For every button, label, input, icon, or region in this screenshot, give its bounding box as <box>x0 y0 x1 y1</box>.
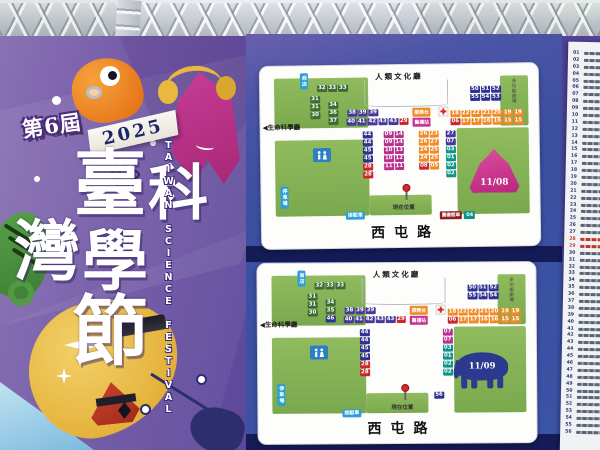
booth-29: 29 <box>399 118 409 125</box>
booth-39: 39 <box>366 307 376 314</box>
booth-group-orange-pairs: 26232627242524250805 <box>419 130 440 169</box>
booth-54: 54 <box>481 94 491 101</box>
legend-number: 36 <box>568 292 577 297</box>
booth-17: 17 <box>471 118 481 125</box>
booth-20: 20 <box>490 308 500 315</box>
booth-28: 28 <box>363 171 373 178</box>
booth-32: 32 <box>317 85 327 92</box>
booth-group-pink-pairs: 09140914101310121111 <box>384 131 405 170</box>
booth-group-purple-row-2: 404142434329 <box>344 316 406 323</box>
booth-54: 54 <box>478 292 488 299</box>
booth-45: 45 <box>360 345 370 352</box>
booth-31: 31 <box>308 302 318 309</box>
legend-number: 49 <box>566 381 575 386</box>
booth-group-col-b: 343637 <box>328 102 338 125</box>
booth-35: 35 <box>326 307 336 314</box>
legend-number: 44 <box>567 347 576 352</box>
booth-55: 55 <box>470 94 480 101</box>
booth-46: 46 <box>326 315 336 322</box>
legend-number: 13 <box>571 133 580 138</box>
booth-27: 27 <box>446 130 456 137</box>
booth-31: 31 <box>308 294 318 301</box>
booth-group-col-a: 313130 <box>308 294 318 317</box>
legend-number: 27 <box>569 230 578 235</box>
booth-07: 07 <box>446 138 456 145</box>
legend-text-cutoff <box>582 128 600 132</box>
legend-text-cutoff <box>581 203 600 207</box>
booth-19: 19 <box>500 308 510 315</box>
booth-group-navy-grid: 505152555453 <box>470 86 501 101</box>
legend-number: 54 <box>565 416 574 421</box>
legend-number: 33 <box>568 271 577 276</box>
booth-38: 38 <box>345 307 355 314</box>
title-char-jie: 節 <box>72 294 148 370</box>
atom-dot <box>34 176 40 182</box>
booth-38: 38 <box>347 110 357 117</box>
booth-group-right-col: 070703010202 <box>443 329 453 376</box>
legend-text-cutoff <box>579 300 600 304</box>
booth-group-col-a: 313130 <box>310 96 320 119</box>
booth-26: 26 <box>419 131 429 138</box>
legend-text-cutoff <box>578 355 600 359</box>
booth-07: 07 <box>443 329 453 336</box>
booth-43: 43 <box>375 316 385 323</box>
booth-16: 16 <box>482 118 492 125</box>
booth-14: 14 <box>394 139 404 146</box>
legend-number: 18 <box>571 168 580 173</box>
legend-text-cutoff <box>577 410 600 414</box>
booth-group-purple-row-1: 383939 <box>347 109 378 116</box>
booth-33: 33 <box>338 85 348 92</box>
booth-group-orange-grid: 1822222120191906171716161515 <box>450 109 523 125</box>
legend-text-cutoff <box>580 265 600 269</box>
booth-group-orange-grid: 1822222120191906171716161515 <box>448 308 521 324</box>
legend-number: 51 <box>566 395 575 400</box>
legend-text-cutoff <box>584 66 600 70</box>
legend-number: 16 <box>571 154 580 159</box>
festival-banner-photo: 第6屆 2025 臺 科 灣 學 節 TAIWAN SCIENCE FESTIV… <box>0 0 600 450</box>
booth-11: 11 <box>384 163 394 170</box>
legend-text-cutoff <box>583 93 600 97</box>
booth-33: 33 <box>336 282 346 289</box>
legend-text-cutoff <box>576 417 600 421</box>
legend-number: 50 <box>566 388 575 393</box>
booth-layer-1108: 3233333131303436373839394041424343295051… <box>260 63 541 249</box>
booth-45: 45 <box>363 155 373 162</box>
legend-number: 29 <box>569 243 578 248</box>
legend-text-cutoff <box>577 369 600 373</box>
booth-08: 08 <box>419 163 429 170</box>
legend-text-cutoff <box>579 286 600 290</box>
booth-24: 24 <box>419 147 429 154</box>
legend-number: 55 <box>565 423 574 428</box>
booth-36: 36 <box>328 110 338 117</box>
legend-text-cutoff <box>578 362 600 366</box>
legend-number: 08 <box>572 99 581 104</box>
legend-number: 14 <box>571 140 580 145</box>
title-char-tai: 臺 <box>74 148 146 220</box>
legend-number: 12 <box>571 126 580 131</box>
booth-group-purple-row-1: 383939 <box>345 307 376 314</box>
legend-number: 45 <box>567 354 576 359</box>
booth-22: 22 <box>469 308 479 315</box>
booth-31: 31 <box>310 104 320 111</box>
legend-number: 11 <box>572 119 581 124</box>
booth-24: 24 <box>419 155 429 162</box>
legend-number: 35 <box>568 285 577 290</box>
legend-number: 01 <box>573 51 582 56</box>
booth-21: 21 <box>482 110 492 117</box>
booth-51: 51 <box>481 86 491 93</box>
atom-dot <box>52 96 61 105</box>
legend-number: 28 <box>569 237 578 242</box>
booth-50: 50 <box>470 86 480 93</box>
booth-39: 39 <box>368 109 378 116</box>
booth-03: 03 <box>443 345 453 352</box>
booth-22: 22 <box>458 309 468 316</box>
legend-number: 10 <box>572 113 581 118</box>
title-char-wan: 灣 <box>14 218 80 284</box>
booth-17: 17 <box>461 118 471 125</box>
booth-group-pin-56: 56 <box>434 392 444 399</box>
booth-28: 28 <box>360 369 370 376</box>
legend-text-cutoff <box>581 183 600 187</box>
map-panel-zone: 人類文化廳 ◀生命科學廳 多功能劇場 商店 停車場 接駁車 服務台 醫護站 11… <box>246 34 562 450</box>
legend-number: 15 <box>571 147 580 152</box>
legend-number: 17 <box>571 161 580 166</box>
booth-52: 52 <box>489 284 499 291</box>
booth-54: 54 <box>489 292 499 299</box>
legend-text-cutoff <box>584 59 600 63</box>
legend-text-cutoff <box>576 431 600 435</box>
legend-number: 06 <box>572 85 581 90</box>
legend-text-cutoff <box>581 176 600 180</box>
booth-18: 18 <box>448 309 458 316</box>
booth-22: 22 <box>471 110 481 117</box>
legend-text-cutoff <box>579 307 600 311</box>
legend-text-cutoff <box>582 148 600 152</box>
legend-text-cutoff <box>578 327 600 331</box>
legend-text-cutoff <box>578 348 600 352</box>
legend-text-cutoff <box>580 238 600 242</box>
legend-text-cutoff <box>577 389 600 393</box>
booth-12: 12 <box>394 155 404 162</box>
booth-44: 44 <box>360 337 370 344</box>
legend-number: 03 <box>573 64 582 69</box>
booth-10: 10 <box>384 155 394 162</box>
legend-text-cutoff <box>576 424 600 428</box>
legend-text-cutoff <box>579 272 600 276</box>
english-subtitle-vertical: TAIWAN SCIENCE FESTIVAL <box>163 140 174 416</box>
legend-text-cutoff <box>577 396 600 400</box>
legend-text-cutoff <box>584 52 600 56</box>
booth-group-navy-grid: 505152555454 <box>468 284 499 299</box>
legend-number: 05 <box>572 78 581 83</box>
booth-layer-1109: 3233333131303435463839394041424343295051… <box>257 262 536 444</box>
legend-number: 09 <box>572 106 581 111</box>
booth-33: 33 <box>328 85 338 92</box>
booth-34: 34 <box>326 299 336 306</box>
legend-number: 53 <box>566 409 575 414</box>
molecule-dot-icon <box>196 374 207 385</box>
booth-16: 16 <box>490 316 500 323</box>
legend-text-cutoff <box>579 279 600 283</box>
booth-18: 18 <box>450 110 460 117</box>
legend-number: 02 <box>573 57 582 62</box>
booth-02: 02 <box>446 162 456 169</box>
legend-number: 22 <box>570 195 579 200</box>
booth-19: 19 <box>513 109 523 116</box>
legend-text-cutoff <box>582 162 600 166</box>
legend-text-cutoff <box>580 259 600 263</box>
booth-45: 45 <box>360 353 370 360</box>
legend-text-cutoff <box>579 314 600 318</box>
legend-text-cutoff <box>581 217 600 221</box>
legend-number: 40 <box>567 319 576 324</box>
booth-16: 16 <box>492 118 502 125</box>
booth-32: 32 <box>315 283 325 290</box>
booth-20: 20 <box>492 110 502 117</box>
legend-text-cutoff <box>582 155 600 159</box>
booth-43: 43 <box>386 316 396 323</box>
booth-28: 28 <box>363 163 373 170</box>
legend-number: 21 <box>570 188 579 193</box>
legend-text-cutoff <box>577 383 600 387</box>
booth-group-shop-row: 323333 <box>315 282 346 289</box>
legend-text-cutoff <box>583 114 600 118</box>
legend-text-cutoff <box>577 403 600 407</box>
legend-text-cutoff <box>580 231 600 235</box>
legend-number: 26 <box>569 223 578 228</box>
booth-37: 37 <box>328 118 338 125</box>
booth-21: 21 <box>479 308 489 315</box>
legend-number: 23 <box>570 202 579 207</box>
booth-39: 39 <box>355 307 365 314</box>
legend-text-cutoff <box>577 376 600 380</box>
booth-33: 33 <box>325 282 335 289</box>
booth-group-mid-col: 444445452828 <box>360 329 370 376</box>
legend-text-cutoff <box>582 169 600 173</box>
molecule-dot-icon <box>140 404 151 415</box>
booth-52: 52 <box>491 86 501 93</box>
legend-text-cutoff <box>583 79 600 83</box>
legend-text-cutoff <box>578 341 600 345</box>
booth-41: 41 <box>354 316 364 323</box>
legend-number: 52 <box>566 402 575 407</box>
legend-text-cutoff <box>581 190 600 194</box>
monster-goggle-icon <box>86 86 102 99</box>
booth-group-shop-row: 323333 <box>317 85 348 92</box>
booth-03: 03 <box>446 146 456 153</box>
booth-15: 15 <box>513 117 523 124</box>
venue-map-1109: 人類文化廳 ◀生命科學廳 多功能劇場 商店 停車場 接駁車 服務台 醫護站 <box>256 261 537 445</box>
booth-06: 06 <box>448 317 458 324</box>
booth-09: 09 <box>384 139 394 146</box>
legend-text-cutoff <box>583 107 600 111</box>
booth-05: 05 <box>430 162 440 169</box>
booth-group-col-b: 343546 <box>326 299 336 322</box>
booth-01: 01 <box>443 353 453 360</box>
booth-09: 09 <box>384 131 394 138</box>
booth-50: 50 <box>468 284 478 291</box>
booth-40: 40 <box>344 316 354 323</box>
legend-row-56: 56 <box>565 429 600 437</box>
booth-42: 42 <box>367 118 377 125</box>
legend-number: 34 <box>568 278 577 283</box>
legend-number: 24 <box>570 209 579 214</box>
monster-pupil <box>108 71 117 80</box>
legend-number: 46 <box>567 361 576 366</box>
booth-19: 19 <box>503 109 513 116</box>
legend-text-cutoff <box>581 197 600 201</box>
booth-group-right-col: 270703010202 <box>446 130 456 177</box>
legend-text-cutoff <box>580 224 600 228</box>
legend-number: 25 <box>570 216 579 221</box>
booth-42: 42 <box>365 316 375 323</box>
booth-28: 28 <box>360 361 370 368</box>
booth-30: 30 <box>310 112 320 119</box>
booth-44: 44 <box>363 131 373 138</box>
legend-text-cutoff <box>582 141 600 145</box>
booth-group-mid-col: 444445452828 <box>363 131 373 178</box>
booth-17: 17 <box>458 317 468 324</box>
booth-43: 43 <box>388 118 398 125</box>
legend-number: 32 <box>569 264 578 269</box>
booth-15: 15 <box>503 117 513 124</box>
venue-map-1108: 人類文化廳 ◀生命科學廳 多功能劇場 商店 停車場 接駁車 服務台 醫護站 11… <box>259 62 542 250</box>
booth-25: 25 <box>429 146 439 153</box>
booth-22: 22 <box>461 110 471 117</box>
legend-number: 19 <box>570 175 579 180</box>
legend-number: 30 <box>569 250 578 255</box>
booth-15: 15 <box>511 316 521 323</box>
legend-text-cutoff <box>583 86 600 90</box>
booth-16: 16 <box>479 316 489 323</box>
booth-01: 01 <box>446 154 456 161</box>
legend-number: 42 <box>567 333 576 338</box>
booth-06: 06 <box>450 118 460 125</box>
booth-29: 29 <box>396 316 406 323</box>
booth-25: 25 <box>429 154 439 161</box>
booth-02: 02 <box>443 369 453 376</box>
legend-text-cutoff <box>578 334 600 338</box>
booth-34: 34 <box>328 102 338 109</box>
booth-53: 53 <box>491 94 501 101</box>
booth-30: 30 <box>308 310 318 317</box>
legend-number: 37 <box>568 299 577 304</box>
booth-44: 44 <box>360 329 370 336</box>
booth-02: 02 <box>446 170 456 177</box>
booth-10: 10 <box>384 147 394 154</box>
booth-40: 40 <box>346 119 356 126</box>
legend-text-cutoff <box>579 293 600 297</box>
booth-56: 56 <box>434 392 444 399</box>
booth-26: 26 <box>419 139 429 146</box>
booth-13: 13 <box>394 147 404 154</box>
booth-44: 44 <box>363 139 373 146</box>
legend-number: 48 <box>566 374 575 379</box>
legend-number: 20 <box>570 181 579 186</box>
legend-number: 43 <box>567 340 576 345</box>
legend-text-cutoff <box>584 73 600 77</box>
booth-45: 45 <box>363 147 373 154</box>
legend-number: 04 <box>573 71 582 76</box>
booth-55: 55 <box>468 292 478 299</box>
legend-number: 41 <box>567 326 576 331</box>
booth-02: 02 <box>443 361 453 368</box>
booth-15: 15 <box>500 316 510 323</box>
legend-number: 56 <box>565 430 574 435</box>
booth-39: 39 <box>358 109 368 116</box>
legend-text-cutoff <box>581 210 600 214</box>
title-char-ke: 科 <box>148 164 208 224</box>
booth-41: 41 <box>357 118 367 125</box>
title-char-xue: 學 <box>82 228 148 294</box>
legend-text-cutoff <box>582 135 600 139</box>
booth-31: 31 <box>310 96 320 103</box>
legend-number: 31 <box>569 257 578 262</box>
legend-text-cutoff <box>583 100 600 104</box>
booth-19: 19 <box>511 308 521 315</box>
legend-text-cutoff <box>580 252 600 256</box>
booth-group-purple-row-2: 404142434329 <box>346 118 408 126</box>
booth-17: 17 <box>469 316 479 323</box>
legend-text-cutoff <box>580 245 600 249</box>
booth-11: 11 <box>395 163 405 170</box>
booth-14: 14 <box>394 131 404 138</box>
legend-text-cutoff <box>583 121 600 125</box>
legend-number: 38 <box>568 306 577 311</box>
booth-43: 43 <box>378 118 388 125</box>
legend-number: 39 <box>568 312 577 317</box>
legend-text-cutoff <box>578 321 600 325</box>
legend-number: 47 <box>566 368 575 373</box>
booth-23: 23 <box>429 130 439 137</box>
booth-07: 07 <box>443 337 453 344</box>
booth-27: 27 <box>429 138 439 145</box>
legend-number: 07 <box>572 92 581 97</box>
booth-51: 51 <box>478 284 488 291</box>
